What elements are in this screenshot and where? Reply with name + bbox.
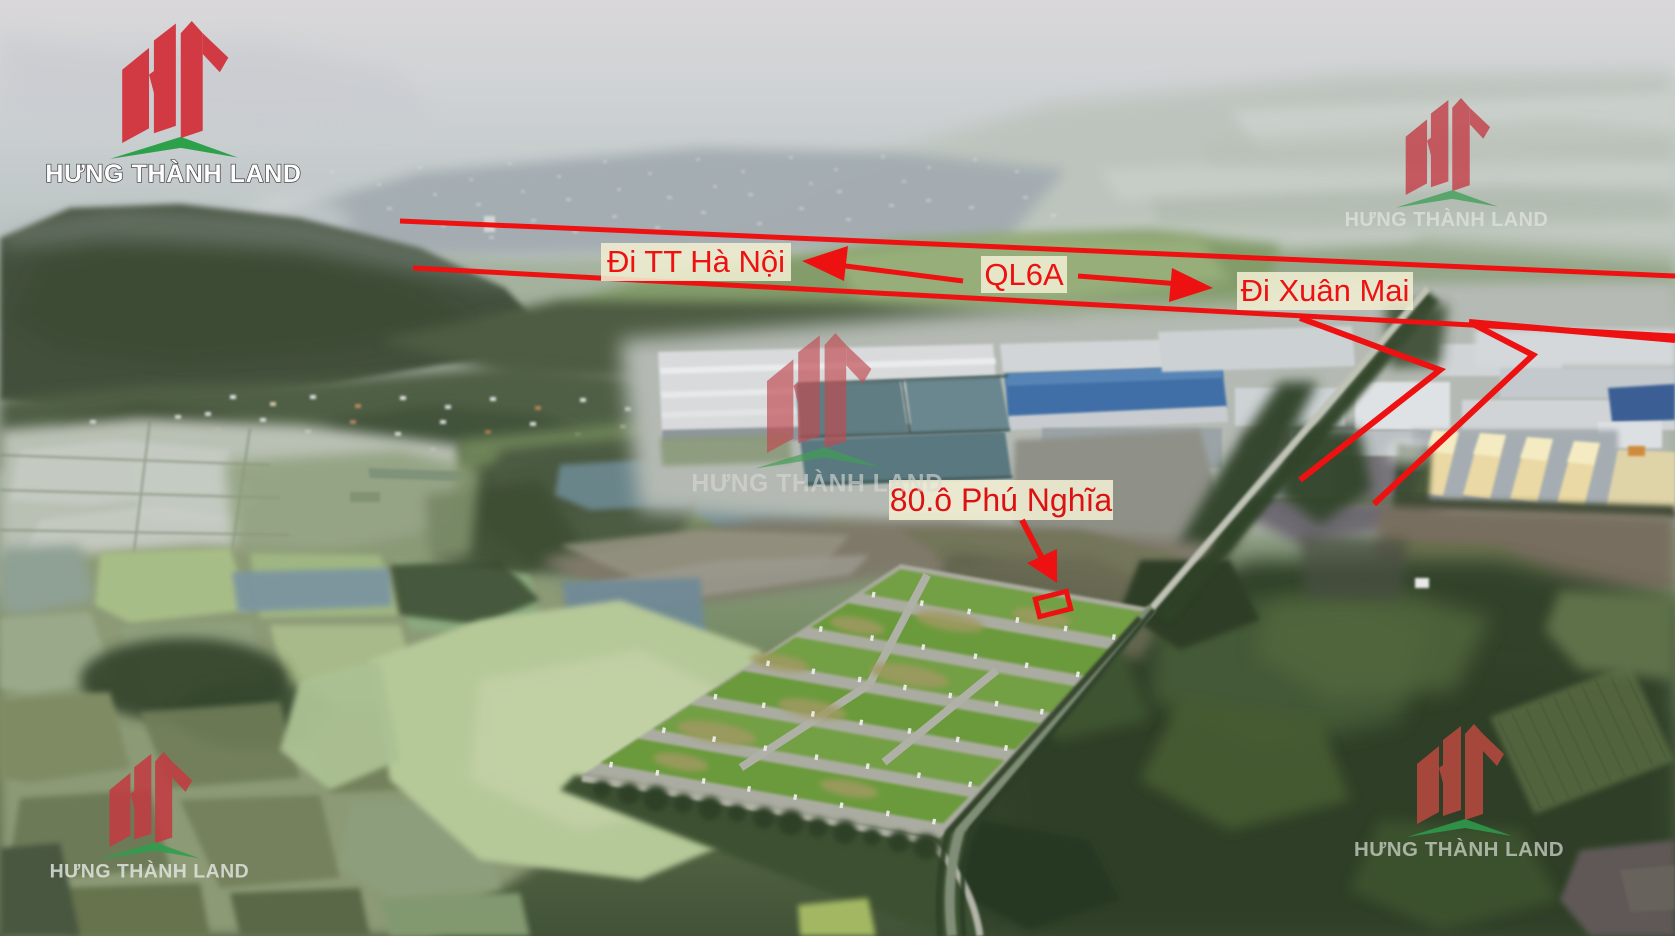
svg-text:QL6A: QL6A [984,257,1064,292]
svg-text:HƯNG THÀNH LAND: HƯNG THÀNH LAND [1354,838,1564,861]
svg-text:Đi TT Hà Nội: Đi TT Hà Nội [607,244,785,279]
svg-text:HƯNG THÀNH LAND: HƯNG THÀNH LAND [691,469,943,497]
svg-text:HƯNG THÀNH LAND: HƯNG THÀNH LAND [45,159,301,188]
svg-text:HƯNG THÀNH LAND: HƯNG THÀNH LAND [1345,208,1549,231]
svg-text:HƯNG THÀNH LAND: HƯNG THÀNH LAND [50,859,250,882]
svg-text:Đi Xuân Mai: Đi Xuân Mai [1241,273,1410,308]
